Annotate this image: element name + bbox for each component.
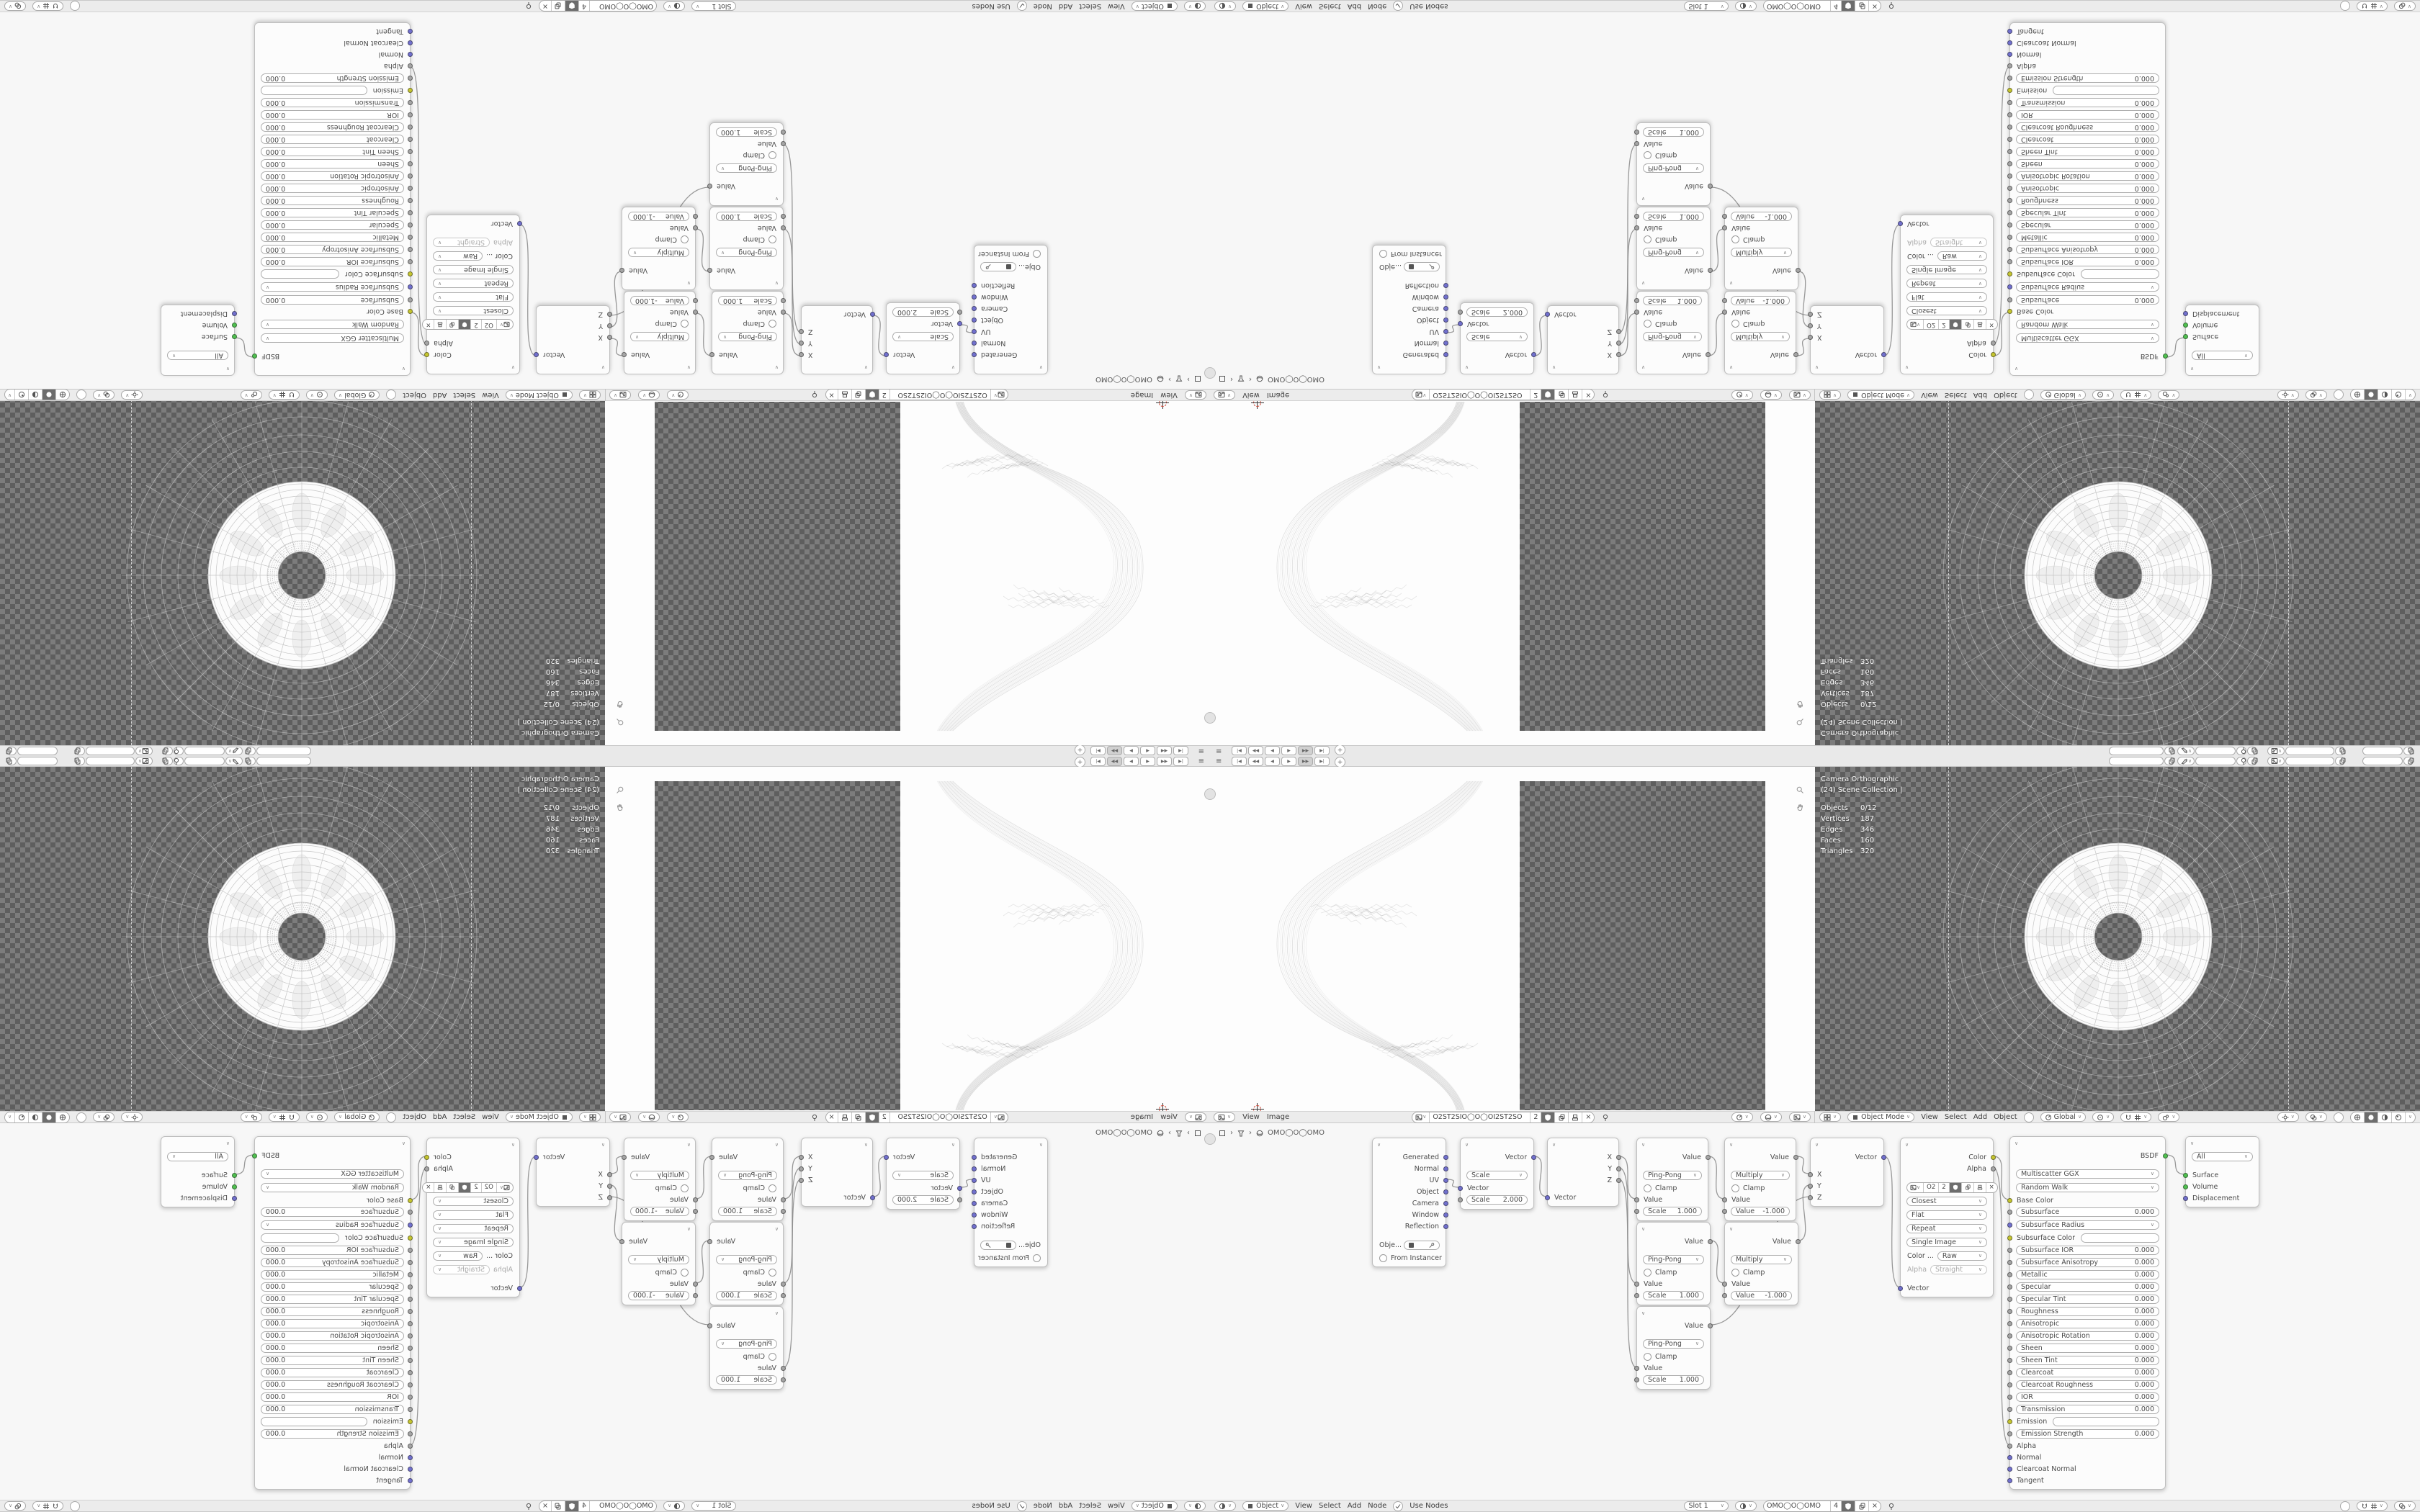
menu-node[interactable]: Node bbox=[1368, 2, 1386, 10]
material-output-node[interactable]: ∨All∨SurfaceVolumeDisplacement bbox=[2185, 1136, 2259, 1207]
checkbox-clamp[interactable]: Clamp bbox=[712, 1182, 783, 1194]
field-scale[interactable]: Scale2.000 bbox=[887, 306, 959, 318]
new-material-button[interactable] bbox=[552, 1, 565, 12]
math-pingpong-node[interactable]: ∨ValuePing-Pong∨ClampValueScale1.000 bbox=[709, 122, 784, 206]
node-socket[interactable] bbox=[1881, 353, 1886, 358]
material-output-node[interactable]: ∨All∨SurfaceVolumeDisplacement bbox=[2185, 305, 2259, 376]
node-socket[interactable] bbox=[799, 353, 804, 358]
node-socket[interactable] bbox=[2163, 354, 2168, 359]
field-value[interactable]: Value-1.000 bbox=[1725, 294, 1796, 307]
material-name[interactable]: OMO◯O◯OMO bbox=[1764, 1501, 1830, 1511]
vector-math-scale-node[interactable]: ∨VectorScale∨VectorScale2.000 bbox=[886, 1138, 960, 1210]
field-scale[interactable]: Scale1.000 bbox=[710, 126, 783, 138]
dropdown-color-[interactable]: Color ...Raw∨ bbox=[427, 1249, 519, 1263]
node-socket[interactable] bbox=[1706, 353, 1711, 358]
object-field[interactable]: Obje... bbox=[1373, 260, 1446, 274]
snapping-toggle[interactable] bbox=[2340, 1, 2350, 12]
checkbox-from-instancer[interactable]: From Instancer bbox=[1373, 1252, 1446, 1264]
node-header[interactable]: ∨ bbox=[712, 361, 783, 374]
texture-coordinate-node[interactable]: ∨GeneratedNormalUVObjectCameraWindowRefl… bbox=[974, 1138, 1048, 1267]
node-socket[interactable] bbox=[408, 1455, 413, 1460]
node-socket[interactable] bbox=[972, 1189, 977, 1194]
node-socket[interactable] bbox=[693, 310, 698, 315]
dropdown-closest[interactable]: Closest∨ bbox=[1901, 304, 1993, 318]
node-socket[interactable] bbox=[2007, 284, 2012, 289]
node-socket[interactable] bbox=[1722, 226, 1727, 231]
node-socket[interactable] bbox=[1708, 1239, 1713, 1244]
node-socket[interactable] bbox=[408, 41, 413, 46]
math-pingpong-node[interactable]: ∨ValuePing-Pong∨ClampValueScale1.000 bbox=[1636, 122, 1711, 206]
node-socket[interactable] bbox=[408, 100, 413, 105]
image-texture-node[interactable]: ∨ColorAlpha∨O22×Closest∨Flat∨Repeat∨Sing… bbox=[1900, 215, 1994, 374]
dropdown-multiply[interactable]: Multiply∨ bbox=[624, 330, 695, 343]
node-socket[interactable] bbox=[1808, 1172, 1813, 1177]
node-socket[interactable] bbox=[2007, 235, 2012, 240]
node-socket[interactable] bbox=[2007, 1444, 2012, 1449]
node-socket[interactable] bbox=[408, 271, 413, 276]
node-header[interactable]: ∨ bbox=[161, 1137, 234, 1150]
field-clearcoat-roughness[interactable]: Clearcoat Roughness0.000 bbox=[255, 1379, 410, 1391]
use-nodes-checkbox[interactable] bbox=[1393, 1, 1403, 12]
field-subsurface-anisotropy[interactable]: Subsurface Anisotropy0.000 bbox=[255, 1256, 410, 1269]
math-pingpong-node[interactable]: ∨ValuePing-Pong∨ClampValueScale1.000 bbox=[712, 291, 784, 374]
dropdown-multiscatter-ggx[interactable]: Multiscatter GGX∨ bbox=[2010, 1167, 2165, 1181]
shader-editor-area[interactable]: ∨GeneratedNormalUVObjectCameraWindowRefl… bbox=[0, 0, 1210, 389]
node-socket[interactable] bbox=[408, 161, 413, 166]
node-socket[interactable] bbox=[693, 1197, 698, 1202]
checkbox-clamp[interactable]: Clamp bbox=[1725, 318, 1796, 330]
combine-xyz-node[interactable]: ∨VectorXYZ bbox=[536, 1138, 610, 1207]
node-socket[interactable] bbox=[2007, 149, 2012, 154]
principled-bsdf-node[interactable]: ∨BSDFMultiscatter GGX∨Random Walk∨Base C… bbox=[254, 1136, 411, 1490]
field-clearcoat-roughness[interactable]: Clearcoat Roughness0.000 bbox=[255, 121, 410, 133]
dropdown-subsurface-radius[interactable]: Subsurface Radius∨ bbox=[2010, 1218, 2165, 1232]
node-header[interactable]: ∨ bbox=[887, 361, 959, 374]
node-socket[interactable] bbox=[781, 1377, 786, 1382]
node-socket[interactable] bbox=[2007, 1272, 2012, 1277]
checkbox-clamp[interactable]: Clamp bbox=[1637, 318, 1708, 330]
node-socket[interactable] bbox=[534, 353, 539, 358]
node-socket[interactable] bbox=[972, 353, 977, 358]
field-sheen[interactable]: Sheen0.000 bbox=[255, 1342, 410, 1354]
node-socket[interactable] bbox=[1458, 310, 1463, 315]
field-value[interactable]: Value-1.000 bbox=[622, 210, 695, 222]
field-transmission[interactable]: Transmission0.000 bbox=[2010, 96, 2165, 109]
node-socket[interactable] bbox=[232, 323, 237, 328]
node-socket[interactable] bbox=[2007, 1309, 2012, 1314]
node-socket[interactable] bbox=[1722, 214, 1727, 219]
dropdown-random-walk[interactable]: Random Walk∨ bbox=[2010, 1181, 2165, 1194]
object-field[interactable]: Obje... bbox=[974, 1238, 1047, 1252]
menu-node[interactable]: Node bbox=[1034, 2, 1052, 10]
new-material-button[interactable] bbox=[552, 1501, 565, 1511]
node-socket[interactable] bbox=[1443, 353, 1448, 358]
field-anisotropic[interactable]: Anisotropic0.000 bbox=[255, 182, 410, 194]
node-socket[interactable] bbox=[424, 1166, 429, 1171]
unlink-button[interactable]: × bbox=[1868, 1501, 1881, 1511]
node-socket[interactable] bbox=[2007, 186, 2012, 191]
node-socket[interactable] bbox=[2007, 161, 2012, 166]
editor-type-button[interactable]: ∨ bbox=[1214, 1501, 1236, 1511]
field-ior[interactable]: IOR0.000 bbox=[2010, 1391, 2165, 1403]
node-socket[interactable] bbox=[1443, 1212, 1448, 1218]
node-socket[interactable] bbox=[2183, 312, 2188, 317]
combine-xyz-node[interactable]: ∨VectorXYZ bbox=[1810, 305, 1884, 374]
node-socket[interactable] bbox=[1616, 1155, 1621, 1160]
node-socket[interactable] bbox=[2163, 1153, 2168, 1158]
math-pingpong-node[interactable]: ∨ValuePing-Pong∨ClampValueScale1.000 bbox=[709, 1222, 784, 1305]
node-socket[interactable] bbox=[408, 1358, 413, 1363]
node-socket[interactable] bbox=[622, 1155, 627, 1160]
menu-view[interactable]: View bbox=[1108, 1502, 1125, 1510]
node-socket[interactable] bbox=[2007, 1248, 2012, 1253]
node-socket[interactable] bbox=[2007, 1210, 2012, 1215]
shader-type-dropdown[interactable]: Object∨ bbox=[1131, 1501, 1178, 1511]
node-socket[interactable] bbox=[972, 295, 977, 300]
node-socket[interactable] bbox=[957, 322, 962, 327]
field-value[interactable]: Value-1.000 bbox=[624, 1205, 695, 1218]
node-socket[interactable] bbox=[408, 1198, 413, 1203]
node-socket[interactable] bbox=[884, 1155, 889, 1160]
field-subsurface-anisotropy[interactable]: Subsurface Anisotropy0.000 bbox=[2010, 243, 2165, 256]
menu-add[interactable]: Add bbox=[1059, 2, 1072, 10]
node-socket[interactable] bbox=[2007, 1223, 2012, 1228]
node-socket[interactable] bbox=[2007, 125, 2012, 130]
node-header[interactable]: ∨ bbox=[887, 1138, 959, 1151]
node-socket[interactable] bbox=[870, 1195, 875, 1200]
unlink-button[interactable]: × bbox=[1868, 1, 1881, 12]
field-subsurface-ior[interactable]: Subsurface IOR0.000 bbox=[255, 256, 410, 268]
node-socket[interactable] bbox=[2007, 64, 2012, 69]
node-socket[interactable] bbox=[2007, 137, 2012, 142]
field-transmission[interactable]: Transmission0.000 bbox=[255, 96, 410, 109]
dropdown-subsurface-radius[interactable]: Subsurface Radius∨ bbox=[255, 1218, 410, 1232]
node-socket[interactable] bbox=[781, 130, 786, 135]
node-socket[interactable] bbox=[408, 174, 413, 179]
math-multiply-node[interactable]: ∨ValueMultiply∨ClampValueValue-1.000 bbox=[1724, 1222, 1798, 1305]
texture-coordinate-node[interactable]: ∨GeneratedNormalUVObjectCameraWindowRefl… bbox=[1372, 1138, 1446, 1267]
overlays-popover[interactable]: ∨ bbox=[2394, 1501, 2416, 1511]
node-socket[interactable] bbox=[2007, 1431, 2012, 1436]
node-socket[interactable] bbox=[1458, 1197, 1463, 1202]
node-header[interactable]: ∨ bbox=[622, 276, 695, 289]
math-pingpong-node[interactable]: ∨ValuePing-Pong∨ClampValueScale1.000 bbox=[709, 207, 784, 290]
field-specular-tint[interactable]: Specular Tint0.000 bbox=[2010, 207, 2165, 219]
node-socket[interactable] bbox=[781, 1293, 786, 1298]
node-header[interactable]: ∨ bbox=[427, 361, 519, 374]
node-socket[interactable] bbox=[799, 330, 804, 335]
node-socket[interactable] bbox=[1634, 310, 1639, 315]
image-texture-node[interactable]: ∨ColorAlpha∨O22×Closest∨Flat∨Repeat∨Sing… bbox=[426, 215, 520, 374]
node-socket[interactable] bbox=[2007, 271, 2012, 276]
node-socket[interactable] bbox=[1443, 341, 1448, 346]
field-value[interactable]: Value-1.000 bbox=[622, 1290, 695, 1302]
dropdown-multiply[interactable]: Multiply∨ bbox=[1725, 330, 1796, 343]
node-socket[interactable] bbox=[972, 318, 977, 323]
snapping-group[interactable]: ∨ bbox=[2357, 1, 2388, 11]
node-socket[interactable] bbox=[1898, 222, 1903, 227]
node-socket[interactable] bbox=[408, 1370, 413, 1375]
node-socket[interactable] bbox=[408, 1248, 413, 1253]
node-socket[interactable] bbox=[972, 1178, 977, 1183]
node-socket[interactable] bbox=[1991, 1155, 1996, 1160]
field-subsurface[interactable]: Subsurface0.000 bbox=[2010, 1206, 2165, 1218]
math-multiply-node[interactable]: ∨ValueMultiply∨ClampValueValue-1.000 bbox=[1724, 291, 1796, 374]
node-socket[interactable] bbox=[2007, 41, 2012, 46]
checkbox-clamp[interactable]: Clamp bbox=[1637, 1182, 1708, 1194]
node-socket[interactable] bbox=[709, 353, 714, 358]
snapping-toggle[interactable] bbox=[2340, 1501, 2350, 1511]
node-socket[interactable] bbox=[781, 142, 786, 147]
node-header[interactable]: ∨ bbox=[1548, 1138, 1618, 1151]
vector-math-scale-node[interactable]: ∨VectorScale∨VectorScale2.000 bbox=[1460, 1138, 1534, 1210]
node-socket[interactable] bbox=[884, 353, 889, 358]
node-socket[interactable] bbox=[2007, 1260, 2012, 1265]
node-socket[interactable] bbox=[2183, 1196, 2188, 1201]
dropdown-single-image[interactable]: Single Image∨ bbox=[1901, 263, 1993, 276]
menu-view[interactable]: View bbox=[1295, 2, 1312, 10]
dropdown-single-image[interactable]: Single Image∨ bbox=[1901, 1236, 1993, 1249]
field-roughness[interactable]: Roughness0.000 bbox=[255, 194, 410, 207]
principled-bsdf-node[interactable]: ∨BSDFMultiscatter GGX∨Random Walk∨Base C… bbox=[2009, 1136, 2166, 1490]
dropdown-flat[interactable]: Flat∨ bbox=[1901, 290, 1993, 304]
node-header[interactable]: ∨ bbox=[1637, 1223, 1710, 1236]
node-socket[interactable] bbox=[408, 1272, 413, 1277]
dropdown-multiply[interactable]: Multiply∨ bbox=[1725, 246, 1798, 259]
node-socket[interactable] bbox=[707, 184, 712, 189]
dropdown-multiply[interactable]: Multiply∨ bbox=[1725, 1169, 1796, 1182]
node-socket[interactable] bbox=[972, 341, 977, 346]
node-socket[interactable] bbox=[408, 186, 413, 191]
node-socket[interactable] bbox=[2007, 1321, 2012, 1326]
node-socket[interactable] bbox=[972, 284, 977, 289]
node-socket[interactable] bbox=[1634, 130, 1639, 135]
checkbox-clamp[interactable]: Clamp bbox=[1637, 234, 1710, 246]
node-socket[interactable] bbox=[2183, 1173, 2188, 1178]
field-scale[interactable]: Scale1.000 bbox=[710, 1290, 783, 1302]
node-socket[interactable] bbox=[1545, 312, 1550, 318]
math-pingpong-node[interactable]: ∨ValuePing-Pong∨ClampValueScale1.000 bbox=[1636, 1138, 1708, 1221]
node-socket[interactable] bbox=[2007, 1370, 2012, 1375]
math-pingpong-node[interactable]: ∨ValuePing-Pong∨ClampValueScale1.000 bbox=[1636, 207, 1711, 290]
dropdown-multiscatter-ggx[interactable]: Multiscatter GGX∨ bbox=[255, 1167, 410, 1181]
field-sheen[interactable]: Sheen0.000 bbox=[2010, 1342, 2165, 1354]
field-metallic[interactable]: Metallic0.000 bbox=[2010, 231, 2165, 243]
principled-bsdf-node[interactable]: ∨BSDFMultiscatter GGX∨Random Walk∨Base C… bbox=[2009, 22, 2166, 376]
node-header[interactable]: ∨ bbox=[1637, 276, 1710, 289]
node-socket[interactable] bbox=[1808, 1184, 1813, 1189]
field-specular-tint[interactable]: Specular Tint0.000 bbox=[2010, 1293, 2165, 1305]
node-socket[interactable] bbox=[408, 1395, 413, 1400]
field-sheen[interactable]: Sheen0.000 bbox=[2010, 158, 2165, 170]
node-header[interactable]: ∨ bbox=[1901, 361, 1993, 374]
image-datablock-row[interactable]: ∨O22× bbox=[1901, 1180, 1993, 1194]
node-socket[interactable] bbox=[607, 1184, 612, 1189]
node-header[interactable]: ∨ bbox=[427, 1138, 519, 1151]
checkbox-clamp[interactable]: Clamp bbox=[622, 1266, 695, 1278]
node-header[interactable]: ∨ bbox=[2010, 1137, 2165, 1150]
slot-dropdown[interactable]: Slot 1∨ bbox=[1684, 1, 1728, 11]
field-sheen-tint[interactable]: Sheen Tint0.000 bbox=[2010, 1354, 2165, 1367]
field-roughness[interactable]: Roughness0.000 bbox=[2010, 194, 2165, 207]
dropdown-multiply[interactable]: Multiply∨ bbox=[622, 1253, 695, 1266]
vector-math-scale-node[interactable]: ∨VectorScale∨VectorScale2.000 bbox=[1460, 302, 1534, 374]
texture-coordinate-node[interactable]: ∨GeneratedNormalUVObjectCameraWindowRefl… bbox=[1372, 245, 1446, 374]
dropdown-random-walk[interactable]: Random Walk∨ bbox=[255, 318, 410, 331]
field-specular-tint[interactable]: Specular Tint0.000 bbox=[255, 1293, 410, 1305]
node-socket[interactable] bbox=[707, 1239, 712, 1244]
node-socket[interactable] bbox=[252, 1153, 257, 1158]
node-socket[interactable] bbox=[607, 312, 612, 318]
node-socket[interactable] bbox=[1443, 284, 1448, 289]
dropdown-ping-pong[interactable]: Ping-Pong∨ bbox=[1637, 1253, 1710, 1266]
dropdown-color-[interactable]: Color ...Raw∨ bbox=[1901, 249, 1993, 263]
field-subsurface-anisotropy[interactable]: Subsurface Anisotropy0.000 bbox=[2010, 1256, 2165, 1269]
node-socket[interactable] bbox=[781, 226, 786, 231]
material-users-count[interactable]: 4 bbox=[579, 1501, 590, 1511]
dropdown-scale[interactable]: Scale∨ bbox=[1461, 330, 1533, 343]
dropdown-alpha[interactable]: AlphaStraight∨ bbox=[427, 1263, 519, 1277]
dropdown-repeat[interactable]: Repeat∨ bbox=[427, 1222, 519, 1236]
menu-select[interactable]: Select bbox=[1079, 2, 1101, 10]
node-header[interactable]: ∨ bbox=[1373, 1138, 1446, 1151]
color-field-subsurface-color[interactable]: Subsurface Color bbox=[2010, 268, 2165, 280]
dropdown-repeat[interactable]: Repeat∨ bbox=[1901, 1222, 1993, 1236]
node-socket[interactable] bbox=[693, 298, 698, 303]
dropdown-random-walk[interactable]: Random Walk∨ bbox=[2010, 318, 2165, 331]
node-socket[interactable] bbox=[424, 1155, 429, 1160]
node-socket[interactable] bbox=[232, 1196, 237, 1201]
node-socket[interactable] bbox=[799, 1166, 804, 1171]
node-header[interactable]: ∨ bbox=[161, 362, 234, 375]
dropdown-scale[interactable]: Scale∨ bbox=[887, 1169, 959, 1182]
node-socket[interactable] bbox=[1808, 1195, 1813, 1200]
node-socket[interactable] bbox=[1708, 269, 1713, 274]
node-socket[interactable] bbox=[1634, 298, 1639, 303]
dropdown-scale[interactable]: Scale∨ bbox=[887, 330, 959, 343]
field-metallic[interactable]: Metallic0.000 bbox=[2010, 1269, 2165, 1281]
node-socket[interactable] bbox=[1443, 1201, 1448, 1206]
node-socket[interactable] bbox=[408, 149, 413, 154]
node-socket[interactable] bbox=[607, 1172, 612, 1177]
math-pingpong-node[interactable]: ∨ValuePing-Pong∨ClampValueScale1.000 bbox=[1636, 1222, 1711, 1305]
node-socket[interactable] bbox=[1706, 1155, 1711, 1160]
dropdown-ping-pong[interactable]: Ping-Pong∨ bbox=[710, 246, 783, 259]
dropdown-single-image[interactable]: Single Image∨ bbox=[427, 1236, 519, 1249]
node-socket[interactable] bbox=[2183, 323, 2188, 328]
node-socket[interactable] bbox=[957, 1197, 962, 1202]
node-socket[interactable] bbox=[1634, 1377, 1639, 1382]
node-socket[interactable] bbox=[2007, 1467, 2012, 1472]
node-socket[interactable] bbox=[1443, 330, 1448, 335]
node-socket[interactable] bbox=[408, 1223, 413, 1228]
field-clearcoat-roughness[interactable]: Clearcoat Roughness0.000 bbox=[2010, 1379, 2165, 1391]
node-socket[interactable] bbox=[408, 1382, 413, 1387]
snapping-group[interactable]: ∨ bbox=[32, 1, 63, 11]
node-socket[interactable] bbox=[408, 1444, 413, 1449]
texture-coordinate-node[interactable]: ∨GeneratedNormalUVObjectCameraWindowRefl… bbox=[974, 245, 1048, 374]
node-header[interactable]: ∨ bbox=[1811, 361, 1883, 374]
node-socket[interactable] bbox=[1443, 295, 1448, 300]
node-socket[interactable] bbox=[2007, 247, 2012, 252]
node-socket[interactable] bbox=[424, 341, 429, 346]
node-header[interactable]: ∨ bbox=[710, 192, 783, 205]
node-socket[interactable] bbox=[2007, 210, 2012, 215]
node-socket[interactable] bbox=[2183, 335, 2188, 340]
editor-type-button[interactable]: ∨ bbox=[1214, 1, 1236, 11]
node-header[interactable]: ∨ bbox=[622, 1223, 695, 1236]
dropdown-ping-pong[interactable]: Ping-Pong∨ bbox=[1637, 161, 1710, 175]
field-metallic[interactable]: Metallic0.000 bbox=[255, 1269, 410, 1281]
node-socket[interactable] bbox=[2007, 1358, 2012, 1363]
dropdown-scale[interactable]: Scale∨ bbox=[1461, 1169, 1533, 1182]
node-socket[interactable] bbox=[408, 1236, 413, 1241]
checkbox-clamp[interactable]: Clamp bbox=[1725, 234, 1798, 246]
fake-user-button[interactable] bbox=[565, 1501, 579, 1511]
field-value[interactable]: Value-1.000 bbox=[1725, 210, 1798, 222]
field-scale[interactable]: Scale2.000 bbox=[1461, 1194, 1533, 1206]
node-socket[interactable] bbox=[1443, 1166, 1448, 1171]
node-header[interactable]: ∨ bbox=[1725, 1138, 1796, 1151]
node-header[interactable]: ∨ bbox=[1725, 1223, 1798, 1236]
node-socket[interactable] bbox=[972, 1201, 977, 1206]
node-socket[interactable] bbox=[707, 1323, 712, 1328]
field-value[interactable]: Value-1.000 bbox=[624, 294, 695, 307]
node-socket[interactable] bbox=[408, 1467, 413, 1472]
overlays-popover[interactable]: ∨ bbox=[4, 1501, 26, 1511]
unlink-button[interactable]: × bbox=[539, 1, 552, 12]
node-socket[interactable] bbox=[408, 30, 413, 35]
field-emission-strength[interactable]: Emission Strength0.000 bbox=[255, 72, 410, 84]
menu-node[interactable]: Node bbox=[1034, 1502, 1052, 1510]
node-socket[interactable] bbox=[408, 222, 413, 228]
node-socket[interactable] bbox=[799, 1155, 804, 1160]
node-socket[interactable] bbox=[2007, 112, 2012, 117]
node-socket[interactable] bbox=[408, 76, 413, 81]
node-socket[interactable] bbox=[1634, 1282, 1639, 1287]
field-emission-strength[interactable]: Emission Strength0.000 bbox=[2010, 1428, 2165, 1440]
node-socket[interactable] bbox=[1991, 341, 1996, 346]
dropdown-random-walk[interactable]: Random Walk∨ bbox=[255, 1181, 410, 1194]
node-socket[interactable] bbox=[408, 310, 413, 315]
field-sheen-tint[interactable]: Sheen Tint0.000 bbox=[255, 145, 410, 158]
node-header[interactable]: ∨ bbox=[1548, 361, 1618, 374]
node-socket[interactable] bbox=[957, 310, 962, 315]
node-header[interactable]: ∨ bbox=[710, 1223, 783, 1236]
shader-editor-area[interactable]: ∨GeneratedNormalUVObjectCameraWindowRefl… bbox=[1210, 0, 2420, 389]
menu-select[interactable]: Select bbox=[1319, 1502, 1341, 1510]
field-clearcoat[interactable]: Clearcoat0.000 bbox=[255, 133, 410, 145]
fake-user-button[interactable] bbox=[565, 1, 579, 12]
node-socket[interactable] bbox=[693, 1209, 698, 1214]
menu-add[interactable]: Add bbox=[1348, 2, 1361, 10]
menu-select[interactable]: Select bbox=[1319, 2, 1341, 10]
node-header[interactable]: ∨ bbox=[1637, 192, 1710, 205]
field-clearcoat[interactable]: Clearcoat0.000 bbox=[2010, 1367, 2165, 1379]
node-socket[interactable] bbox=[1991, 1166, 1996, 1171]
checkbox-clamp[interactable]: Clamp bbox=[1725, 1182, 1796, 1194]
node-socket[interactable] bbox=[622, 353, 627, 358]
node-socket[interactable] bbox=[1616, 1166, 1621, 1171]
node-header[interactable]: ∨ bbox=[710, 1307, 783, 1320]
node-socket[interactable] bbox=[2183, 1184, 2188, 1189]
use-nodes-checkbox[interactable] bbox=[1017, 1501, 1027, 1511]
node-socket[interactable] bbox=[1991, 353, 1996, 358]
math-multiply-node[interactable]: ∨ValueMultiply∨ClampValueValue-1.000 bbox=[1724, 1138, 1796, 1221]
menu-add[interactable]: Add bbox=[1059, 1502, 1072, 1510]
dropdown-color-[interactable]: Color ...Raw∨ bbox=[427, 249, 519, 263]
field-ior[interactable]: IOR0.000 bbox=[255, 1391, 410, 1403]
